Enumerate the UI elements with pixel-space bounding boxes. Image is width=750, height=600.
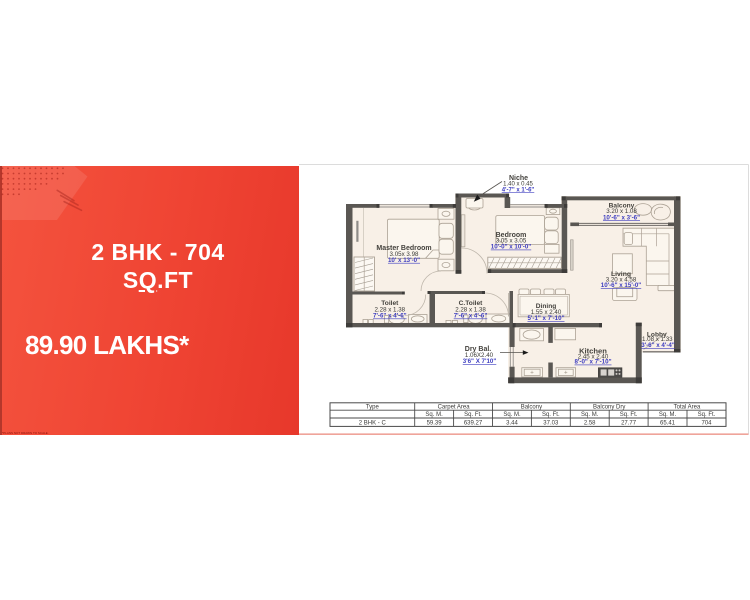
svg-text:7'-6" x 4'-6": 7'-6" x 4'-6" [373,313,407,320]
svg-text:Sq. M.: Sq. M. [581,412,599,418]
svg-text:8'-0" x 7'-10": 8'-0" x 7'-10" [574,359,611,366]
svg-text:Sq. M.: Sq. M. [425,412,443,418]
svg-text:Sq. M.: Sq. M. [503,412,521,418]
svg-text:2.58: 2.58 [584,420,596,426]
svg-text:3.44: 3.44 [506,420,518,426]
svg-text:Sq. Ft.: Sq. Ft. [698,412,716,418]
svg-text:10'-6" x 15'-0": 10'-6" x 15'-0" [601,282,642,289]
svg-text:Type: Type [366,405,380,411]
svg-text:Sq. Ft.: Sq. Ft. [464,412,482,418]
svg-text:4'-7" x 1'-6": 4'-7" x 1'-6" [502,187,535,193]
svg-text:Sq. Ft.: Sq. Ft. [620,412,638,418]
svg-text:2 BHK - C: 2 BHK - C [359,420,387,426]
svg-text:10'-6" x 3'-6": 10'-6" x 3'-6" [603,214,640,221]
svg-text:704: 704 [701,420,712,426]
svg-text:639.27: 639.27 [464,420,483,426]
svg-text:Total Area: Total Area [674,405,701,411]
svg-text:3'-6" x 4'-4": 3'-6" x 4'-4" [641,342,675,349]
svg-text:Sq. M.: Sq. M. [659,412,677,418]
svg-text:5'-1" x 7'-10": 5'-1" x 7'-10" [527,315,564,322]
svg-text:65.41: 65.41 [660,420,676,426]
svg-text:Sq. Ft.: Sq. Ft. [542,412,560,418]
svg-text:Balcony: Balcony [521,405,542,411]
svg-text:3'6" X 7'10": 3'6" X 7'10" [463,358,497,365]
svg-text:37.03: 37.03 [543,420,559,426]
svg-text:59.39: 59.39 [427,420,443,426]
svg-text:10' x 13'-0": 10' x 13'-0" [388,257,420,264]
svg-text:7'-6" x 4'-6": 7'-6" x 4'-6" [454,313,488,320]
svg-text:Balcony Dry: Balcony Dry [593,405,625,411]
svg-text:Carpet Area: Carpet Area [438,405,471,411]
svg-text:27.77: 27.77 [621,420,637,426]
svg-text:10'-0" x 10'-0": 10'-0" x 10'-0" [491,244,532,251]
